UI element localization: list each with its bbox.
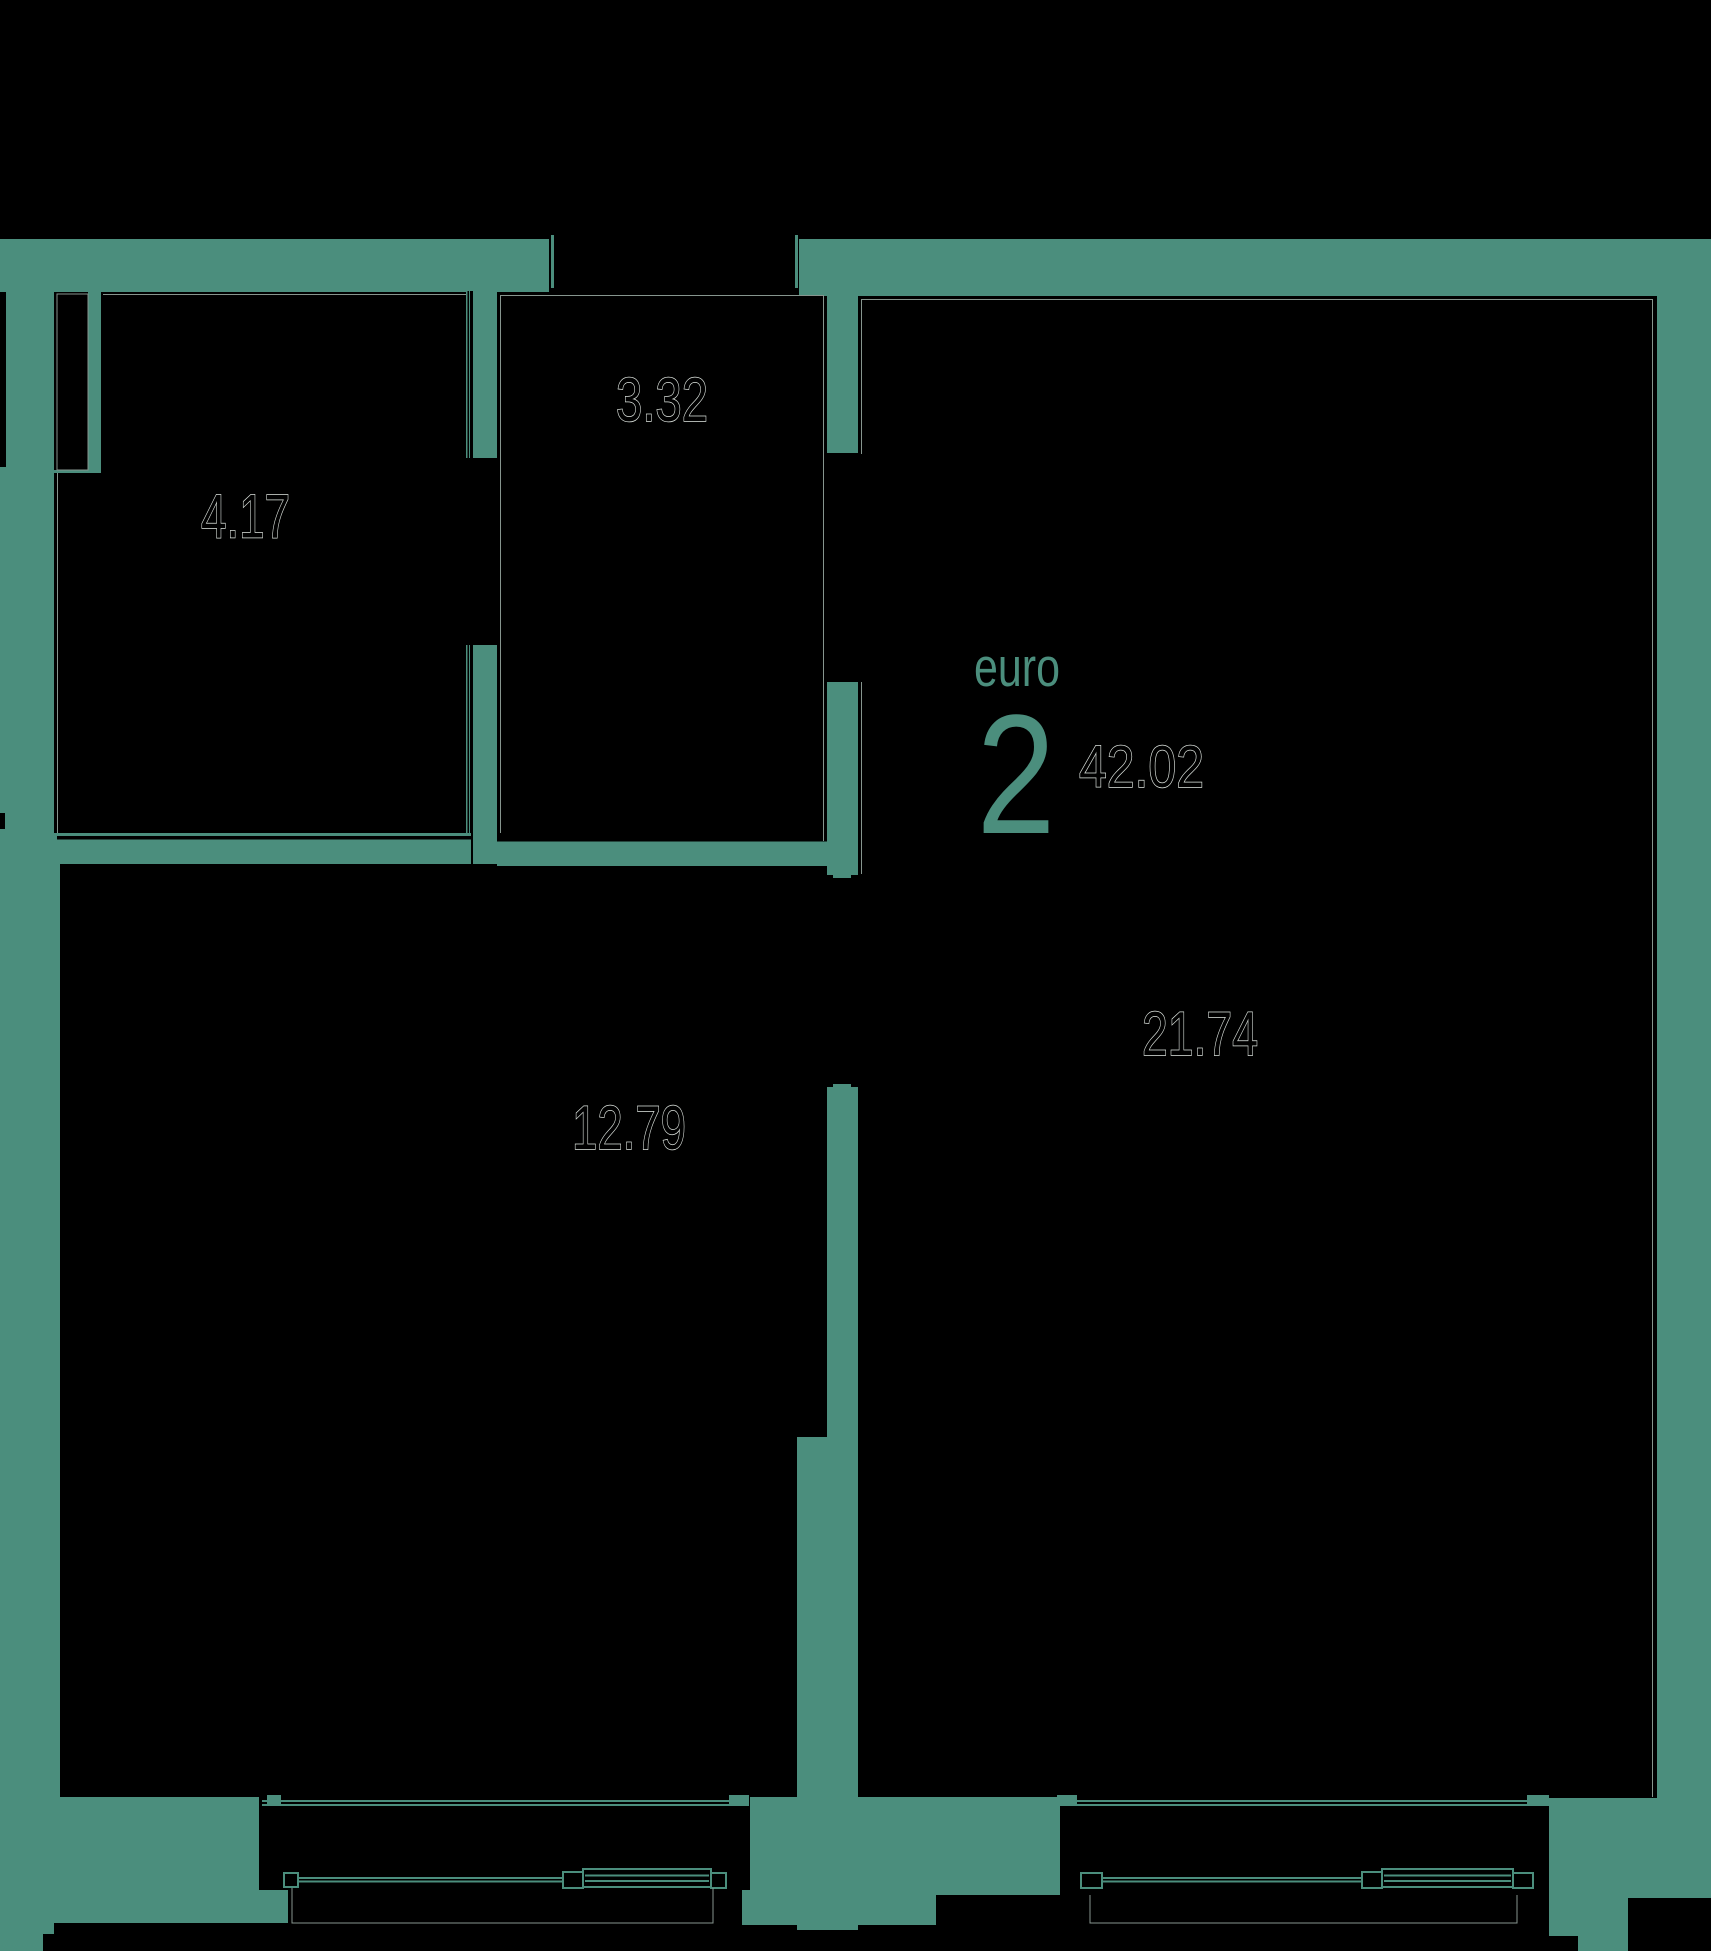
- svg-text:4.17: 4.17: [201, 483, 290, 552]
- svg-text:3.32: 3.32: [616, 366, 708, 435]
- svg-text:42.02: 42.02: [1079, 734, 1204, 800]
- svg-text:12.79: 12.79: [572, 1094, 686, 1163]
- svg-text:2: 2: [977, 680, 1056, 870]
- svg-text:21.74: 21.74: [1142, 1000, 1258, 1069]
